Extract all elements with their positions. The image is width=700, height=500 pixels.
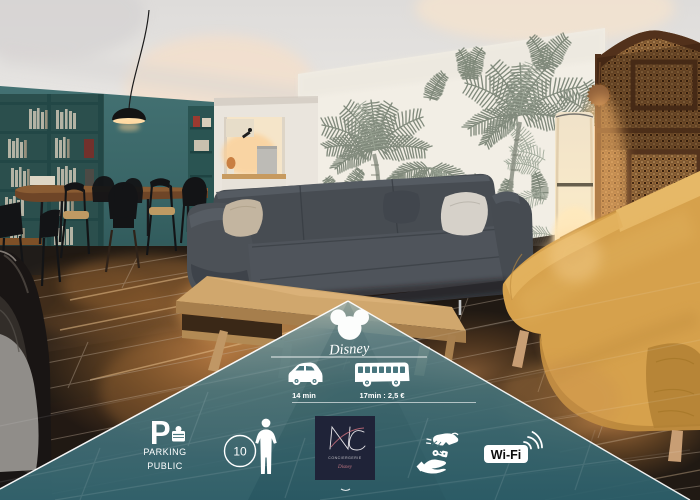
svg-text:Disney: Disney bbox=[337, 465, 353, 470]
svg-text:10: 10 bbox=[233, 445, 247, 459]
svg-text:Disney: Disney bbox=[328, 340, 371, 358]
svg-text:14 min: 14 min bbox=[292, 391, 316, 400]
svg-text:17min : 2,5 €: 17min : 2,5 € bbox=[359, 391, 405, 400]
svg-text:CONCIERGERIE: CONCIERGERIE bbox=[328, 456, 362, 460]
svg-text:Wi-Fi: Wi-Fi bbox=[491, 448, 521, 462]
svg-text:PUBLIC: PUBLIC bbox=[147, 461, 183, 471]
svg-text:PARKING: PARKING bbox=[143, 447, 186, 457]
